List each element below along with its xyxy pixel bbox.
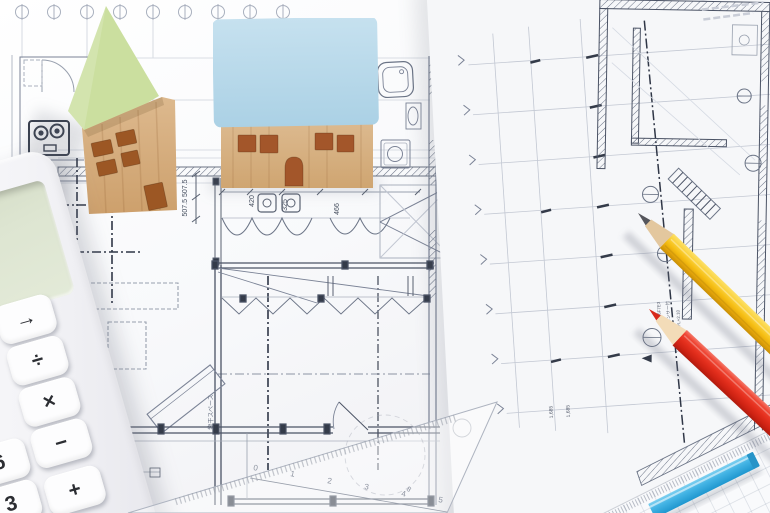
set-square-ruler: 0 1 2 3 4 5 8 [128,402,497,513]
photo-scene: 507.5 507.5 420 325 466 [0,0,770,513]
tools-overlay: 0 1 2 3 4 5 8 [0,0,770,513]
grid-ruler: 18 19 [546,395,770,513]
set-square-number-0: 0 [253,463,259,473]
